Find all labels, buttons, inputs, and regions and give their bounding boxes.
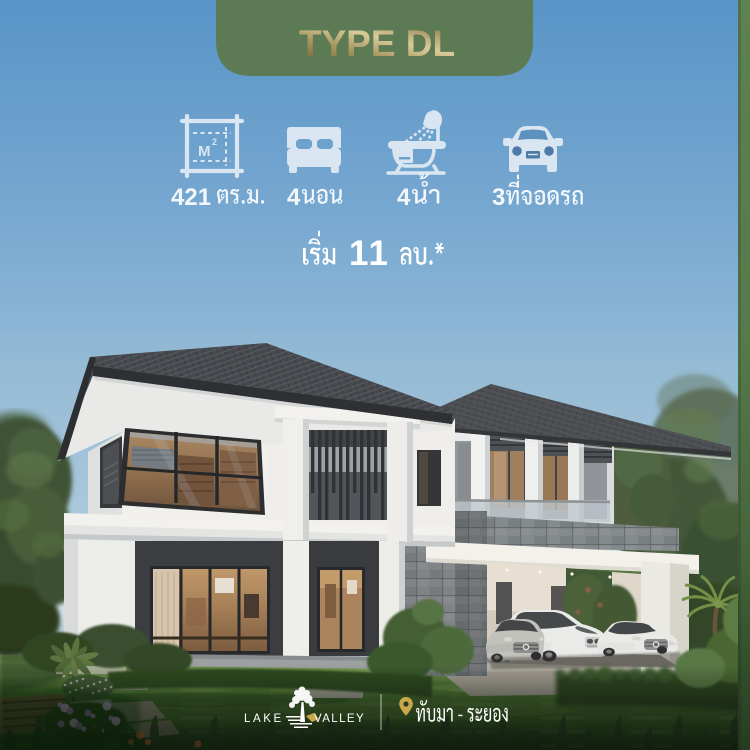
svg-text:4: 4 — [287, 184, 301, 211]
svg-text:3: 3 — [492, 184, 505, 211]
svg-text:11: 11 — [349, 234, 390, 273]
svg-text:M: M — [198, 143, 211, 160]
svg-text:VALLEY: VALLEY — [314, 713, 365, 725]
svg-text:4: 4 — [397, 184, 411, 211]
svg-text:421: 421 — [171, 184, 211, 211]
svg-text:TYPE DL: TYPE DL — [299, 23, 455, 64]
svg-text:2: 2 — [212, 137, 217, 147]
svg-text:LAKE: LAKE — [244, 713, 284, 725]
